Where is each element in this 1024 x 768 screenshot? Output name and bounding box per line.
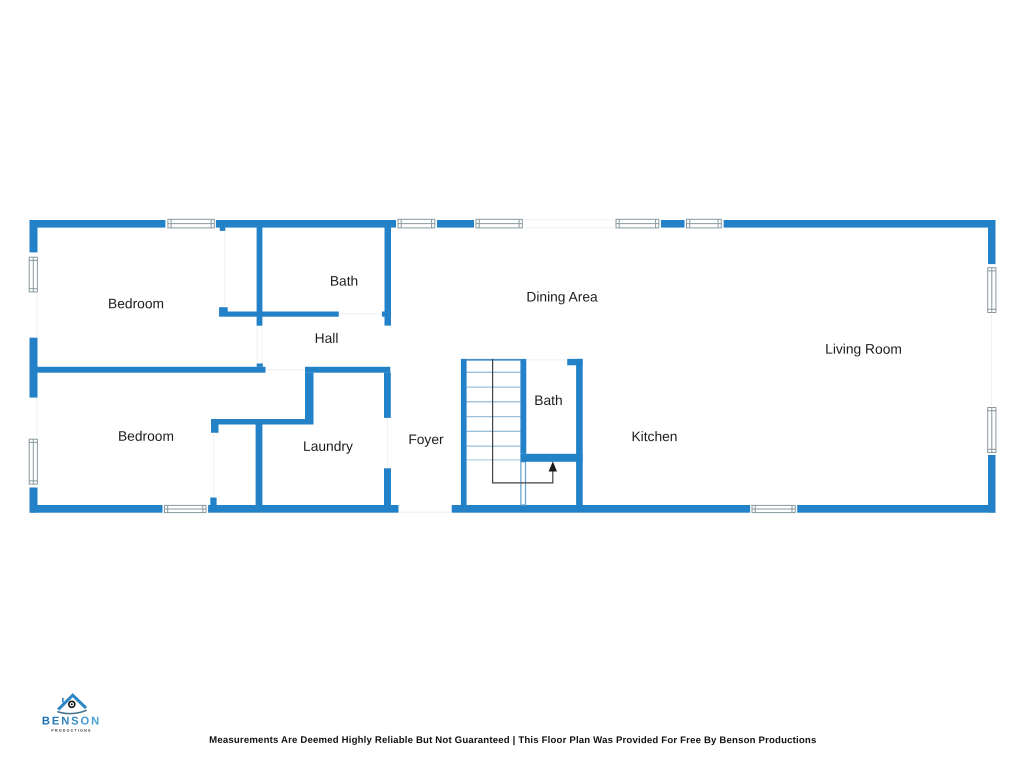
- svg-text:Kitchen: Kitchen: [631, 429, 677, 444]
- svg-text:PRODUCTIONS: PRODUCTIONS: [51, 729, 91, 733]
- svg-text:Bedroom: Bedroom: [108, 296, 164, 311]
- svg-text:Foyer: Foyer: [408, 432, 444, 447]
- svg-text:BENSON: BENSON: [42, 715, 101, 727]
- svg-text:Measurements Are Deemed Highly: Measurements Are Deemed Highly Reliable …: [209, 735, 816, 746]
- svg-text:Laundry: Laundry: [303, 439, 353, 454]
- svg-text:Hall: Hall: [315, 331, 339, 346]
- svg-text:Living Room: Living Room: [825, 342, 902, 357]
- svg-text:Bedroom: Bedroom: [118, 429, 174, 444]
- svg-text:Dining Area: Dining Area: [526, 290, 598, 305]
- svg-text:Bath: Bath: [534, 393, 562, 408]
- svg-text:Bath: Bath: [330, 274, 358, 289]
